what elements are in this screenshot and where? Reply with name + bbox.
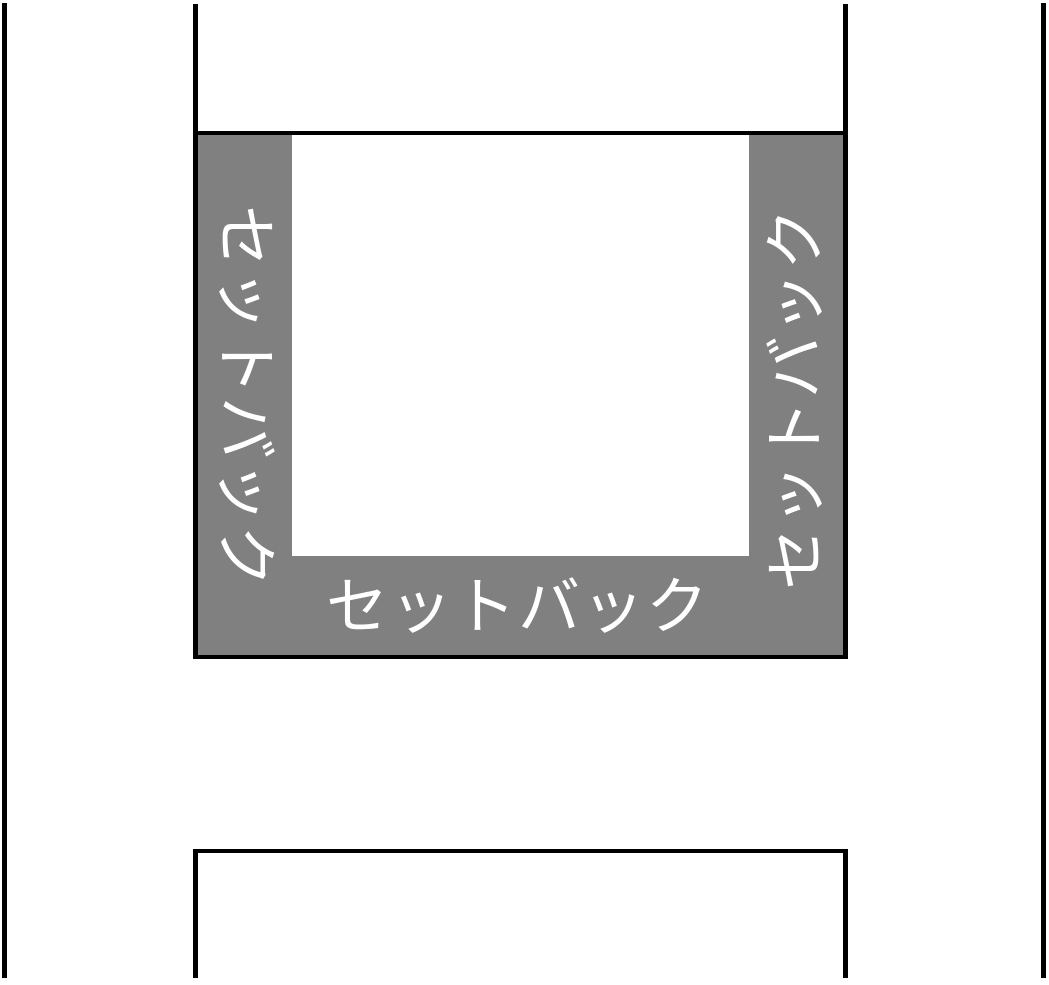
road-edge-line-left: [2, 3, 7, 978]
setback-box-bottom-line: [193, 655, 848, 659]
setback-area: セットバック セットバック セットバック: [198, 135, 843, 655]
buildable-area: [292, 135, 749, 556]
site-boundary-line-right: [843, 4, 848, 659]
setback-diagram: セットバック セットバック セットバック: [0, 0, 1049, 985]
setback-label-bottom: セットバック: [326, 576, 710, 638]
road-edge-line-right: [1041, 3, 1046, 978]
lower-lot-right-line: [843, 849, 848, 978]
lower-lot-left-line: [193, 849, 198, 978]
setback-label-right: セットバック: [765, 206, 827, 590]
setback-label-left: セットバック: [214, 205, 276, 589]
lower-lot-top-line: [193, 849, 848, 853]
